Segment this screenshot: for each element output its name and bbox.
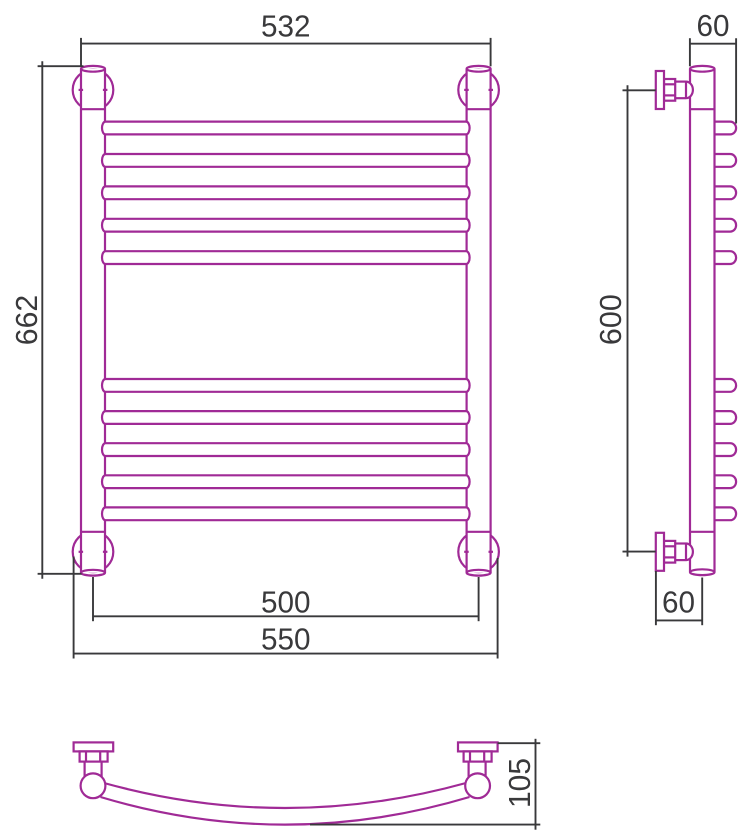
svg-text:60: 60	[662, 584, 695, 619]
svg-text:550: 550	[261, 622, 311, 657]
svg-text:662: 662	[9, 295, 44, 346]
svg-text:105: 105	[502, 758, 537, 808]
svg-text:60: 60	[697, 8, 730, 43]
svg-text:600: 600	[593, 294, 628, 345]
svg-text:500: 500	[261, 585, 311, 620]
svg-text:532: 532	[261, 9, 311, 44]
